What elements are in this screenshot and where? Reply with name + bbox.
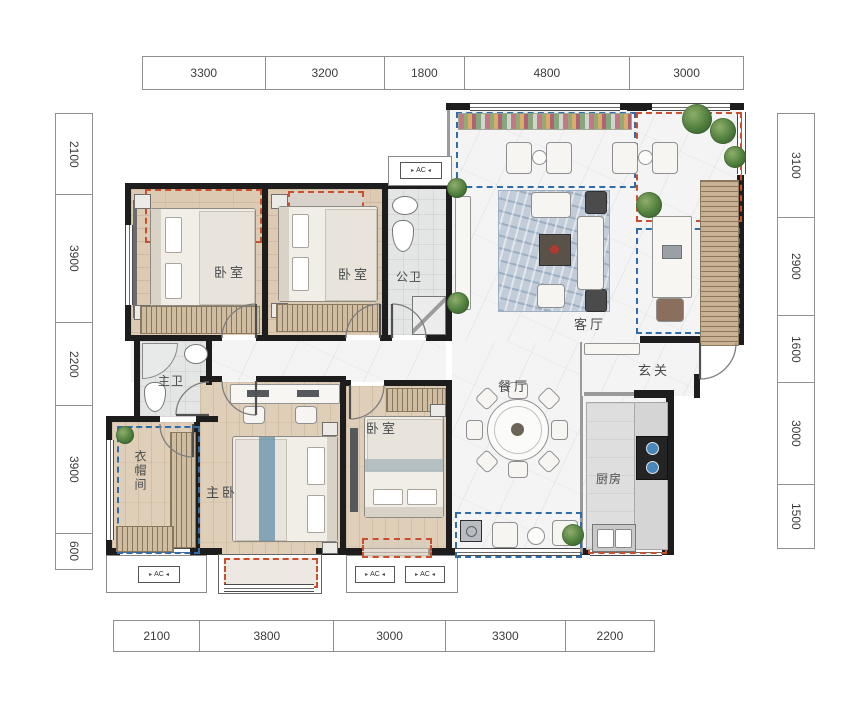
- dimension-value: 3900: [67, 456, 81, 483]
- dimension-cell: 3100: [778, 113, 814, 217]
- dimension-value: 3900: [67, 245, 81, 272]
- ac-triangle-icon: ◂: [166, 572, 169, 578]
- room-label-bedroom1: 卧室: [214, 262, 246, 281]
- dimension-cell: 1500: [778, 484, 814, 549]
- ac-label: AC: [154, 571, 164, 578]
- sofa: [577, 216, 604, 290]
- wall: [262, 189, 268, 335]
- dimension-cell: 4800: [464, 57, 630, 89]
- ac-label: AC: [416, 167, 426, 174]
- plant-icon: [116, 426, 134, 444]
- dimension-cell: 3000: [333, 621, 445, 651]
- dimension-value: 1600: [789, 336, 803, 363]
- lounge-chair: [546, 142, 572, 174]
- pillow: [165, 217, 182, 253]
- nightstand: [134, 194, 151, 209]
- laptop: [662, 245, 682, 259]
- ac-triangle-icon: ▸: [149, 572, 152, 578]
- pillow: [165, 263, 182, 299]
- dimension-cell: 3000: [629, 57, 744, 89]
- desk-chair: [656, 298, 684, 322]
- ac-triangle-icon: ◂: [428, 168, 431, 174]
- desk: [230, 384, 340, 404]
- dimension-cell: 3300: [142, 57, 265, 89]
- dimension-band-top: 3300 3200 1800 4800 3000: [142, 56, 744, 90]
- wall: [206, 341, 212, 385]
- bed-throw: [365, 459, 443, 472]
- pillow: [307, 447, 325, 485]
- wall: [256, 376, 346, 382]
- balcony-chair: [492, 522, 518, 548]
- lounge-chair: [652, 142, 678, 174]
- dimension-cell: 2200: [56, 322, 92, 406]
- room-label-bedroom2: 卧室: [338, 264, 370, 283]
- dimension-cell: 3000: [778, 382, 814, 483]
- dimension-value: 2900: [789, 253, 803, 280]
- wall: [694, 374, 700, 398]
- dimension-cell: 2100: [56, 113, 92, 194]
- wall: [346, 380, 351, 386]
- window: [224, 584, 314, 592]
- dimension-band-right: 3100 2900 1600 3000 1500: [777, 113, 815, 549]
- dimension-band-left: 2100 3900 2200 3900 600: [55, 113, 93, 570]
- dimension-cell: 600: [56, 533, 92, 570]
- room-label-foyer: 玄关: [638, 360, 670, 379]
- nightstand: [322, 422, 338, 436]
- dimension-cell: 3900: [56, 405, 92, 532]
- partition-line: [580, 342, 582, 396]
- bed-headboard: [279, 207, 289, 301]
- dimension-value: 2100: [143, 629, 170, 643]
- dimension-value: 600: [67, 541, 81, 561]
- plant-icon: [636, 192, 662, 218]
- desk-chair: [243, 406, 265, 424]
- gift-area-bedroom3-bay: [362, 538, 432, 558]
- room-label-dining: 餐厅: [498, 376, 530, 395]
- wall: [340, 378, 346, 554]
- kitchen-sink: [592, 524, 636, 552]
- window: [470, 103, 620, 111]
- patio-table: [532, 150, 547, 165]
- room-label-living: 客厅: [574, 314, 606, 333]
- desk: [652, 216, 692, 298]
- shower: [412, 296, 446, 335]
- pillow: [407, 489, 437, 505]
- curtain: [133, 200, 137, 318]
- pillow: [292, 214, 309, 248]
- sink-basin: [615, 529, 632, 548]
- centerpiece: [511, 423, 524, 436]
- dining-chair: [508, 461, 528, 478]
- sink: [392, 196, 418, 215]
- duvet: [325, 209, 377, 301]
- flower-decor: [550, 245, 559, 254]
- ac-triangle-icon: ▸: [365, 572, 368, 578]
- plant-icon: [447, 292, 469, 314]
- dimension-value: 3000: [789, 420, 803, 447]
- plant-icon: [710, 118, 736, 144]
- ac-label: AC: [420, 571, 430, 578]
- wardrobe: [140, 306, 260, 334]
- pillow: [307, 495, 325, 533]
- dimension-cell: 3800: [199, 621, 333, 651]
- wall: [384, 380, 446, 386]
- burner-icon: [646, 442, 659, 455]
- dining-chair: [551, 420, 568, 440]
- dimension-cell: 2900: [778, 217, 814, 316]
- wall: [627, 103, 647, 111]
- dimension-value: 3000: [673, 66, 700, 80]
- burner-icon: [646, 461, 659, 474]
- plant-icon: [682, 104, 712, 134]
- desk-chair: [295, 406, 317, 424]
- room-label-public-bath: 公卫: [396, 268, 422, 285]
- side-table: [585, 289, 607, 312]
- ac-unit: ▸AC◂: [400, 162, 442, 179]
- wardrobe: [276, 304, 378, 332]
- dimension-cell: 3300: [445, 621, 565, 651]
- monitor: [297, 390, 319, 397]
- plant-icon: [724, 146, 746, 168]
- bed: [278, 206, 378, 302]
- plant-icon: [562, 524, 584, 546]
- nightstand: [322, 542, 338, 554]
- window: [106, 440, 114, 540]
- dimension-value: 3300: [492, 629, 519, 643]
- dimension-value: 1500: [789, 503, 803, 530]
- bed: [232, 436, 338, 542]
- dimension-value: 3200: [311, 66, 338, 80]
- lounge-chair: [612, 142, 638, 174]
- ac-unit: ▸AC◂: [138, 566, 180, 583]
- room-label-bedroom3: 卧室: [366, 418, 398, 437]
- room-label-master-bedroom: 主卧: [206, 482, 238, 501]
- bed: [150, 208, 256, 306]
- dimension-value: 3300: [190, 66, 217, 80]
- dimension-value: 4800: [533, 66, 560, 80]
- flower-bed: [458, 113, 632, 130]
- shoe-cabinet: [584, 343, 640, 355]
- washing-machine: [460, 520, 482, 542]
- wall: [380, 335, 392, 341]
- dimension-value: 2100: [67, 141, 81, 168]
- ac-triangle-icon: ▸: [415, 572, 418, 578]
- lounge-chair: [506, 142, 532, 174]
- ac-triangle-icon: ◂: [432, 572, 435, 578]
- side-table: [585, 191, 607, 214]
- bed-throw: [259, 437, 275, 541]
- room-label-cloakroom: 衣帽间: [132, 450, 149, 492]
- nightstand: [430, 404, 446, 417]
- patio-table: [638, 150, 653, 165]
- coffee-table: [539, 234, 571, 266]
- armchair: [531, 192, 571, 218]
- dimension-value: 3800: [254, 629, 281, 643]
- washer-door-icon: [466, 526, 477, 537]
- wall: [446, 183, 452, 341]
- sink-basin: [597, 529, 614, 548]
- pillow: [292, 257, 309, 291]
- bed-headboard: [151, 209, 161, 305]
- ac-triangle-icon: ▸: [411, 168, 414, 174]
- closet-shelving: [116, 526, 174, 552]
- dimension-value: 1800: [411, 66, 438, 80]
- dimension-value: 3000: [376, 629, 403, 643]
- ac-triangle-icon: ◂: [382, 572, 385, 578]
- sink: [184, 344, 208, 364]
- dresser: [350, 428, 358, 512]
- dining-table: [487, 399, 549, 461]
- dimension-value: 2200: [67, 351, 81, 378]
- bed-headboard: [365, 507, 443, 517]
- ac-unit: ▸AC◂: [405, 566, 445, 583]
- wall: [640, 336, 700, 343]
- room-label-kitchen: 厨房: [596, 470, 622, 487]
- dimension-band-bottom: 2100 3800 3000 3300 2200: [113, 620, 655, 652]
- dimension-cell: 2100: [113, 621, 199, 651]
- balcony-table: [527, 527, 545, 545]
- dimension-cell: 3200: [265, 57, 385, 89]
- window: [125, 225, 133, 305]
- wall: [382, 189, 388, 335]
- room-label-master-bath: 主卫: [158, 372, 184, 389]
- bed-headboard: [327, 437, 337, 541]
- stove: [636, 436, 668, 480]
- bookshelf: [700, 180, 739, 346]
- ac-unit: ▸AC◂: [355, 566, 395, 583]
- dimension-cell: 3900: [56, 194, 92, 321]
- plant-icon: [447, 178, 467, 198]
- dimension-value: 3100: [789, 152, 803, 179]
- pillow: [373, 489, 403, 505]
- dimension-cell: 1600: [778, 315, 814, 382]
- ac-label: AC: [370, 571, 380, 578]
- dimension-value: 2200: [597, 629, 624, 643]
- wall: [256, 335, 346, 341]
- dimension-cell: 2200: [565, 621, 655, 651]
- ottoman: [537, 284, 565, 308]
- duvet: [199, 211, 255, 305]
- monitor: [247, 390, 269, 397]
- dining-chair: [466, 420, 483, 440]
- cabinet-line: [584, 392, 634, 396]
- dimension-cell: 1800: [384, 57, 463, 89]
- wall: [134, 335, 140, 422]
- wall: [446, 380, 452, 554]
- floor-plan-canvas: 3300 3200 1800 4800 3000 2100 3800 3000 …: [0, 0, 850, 706]
